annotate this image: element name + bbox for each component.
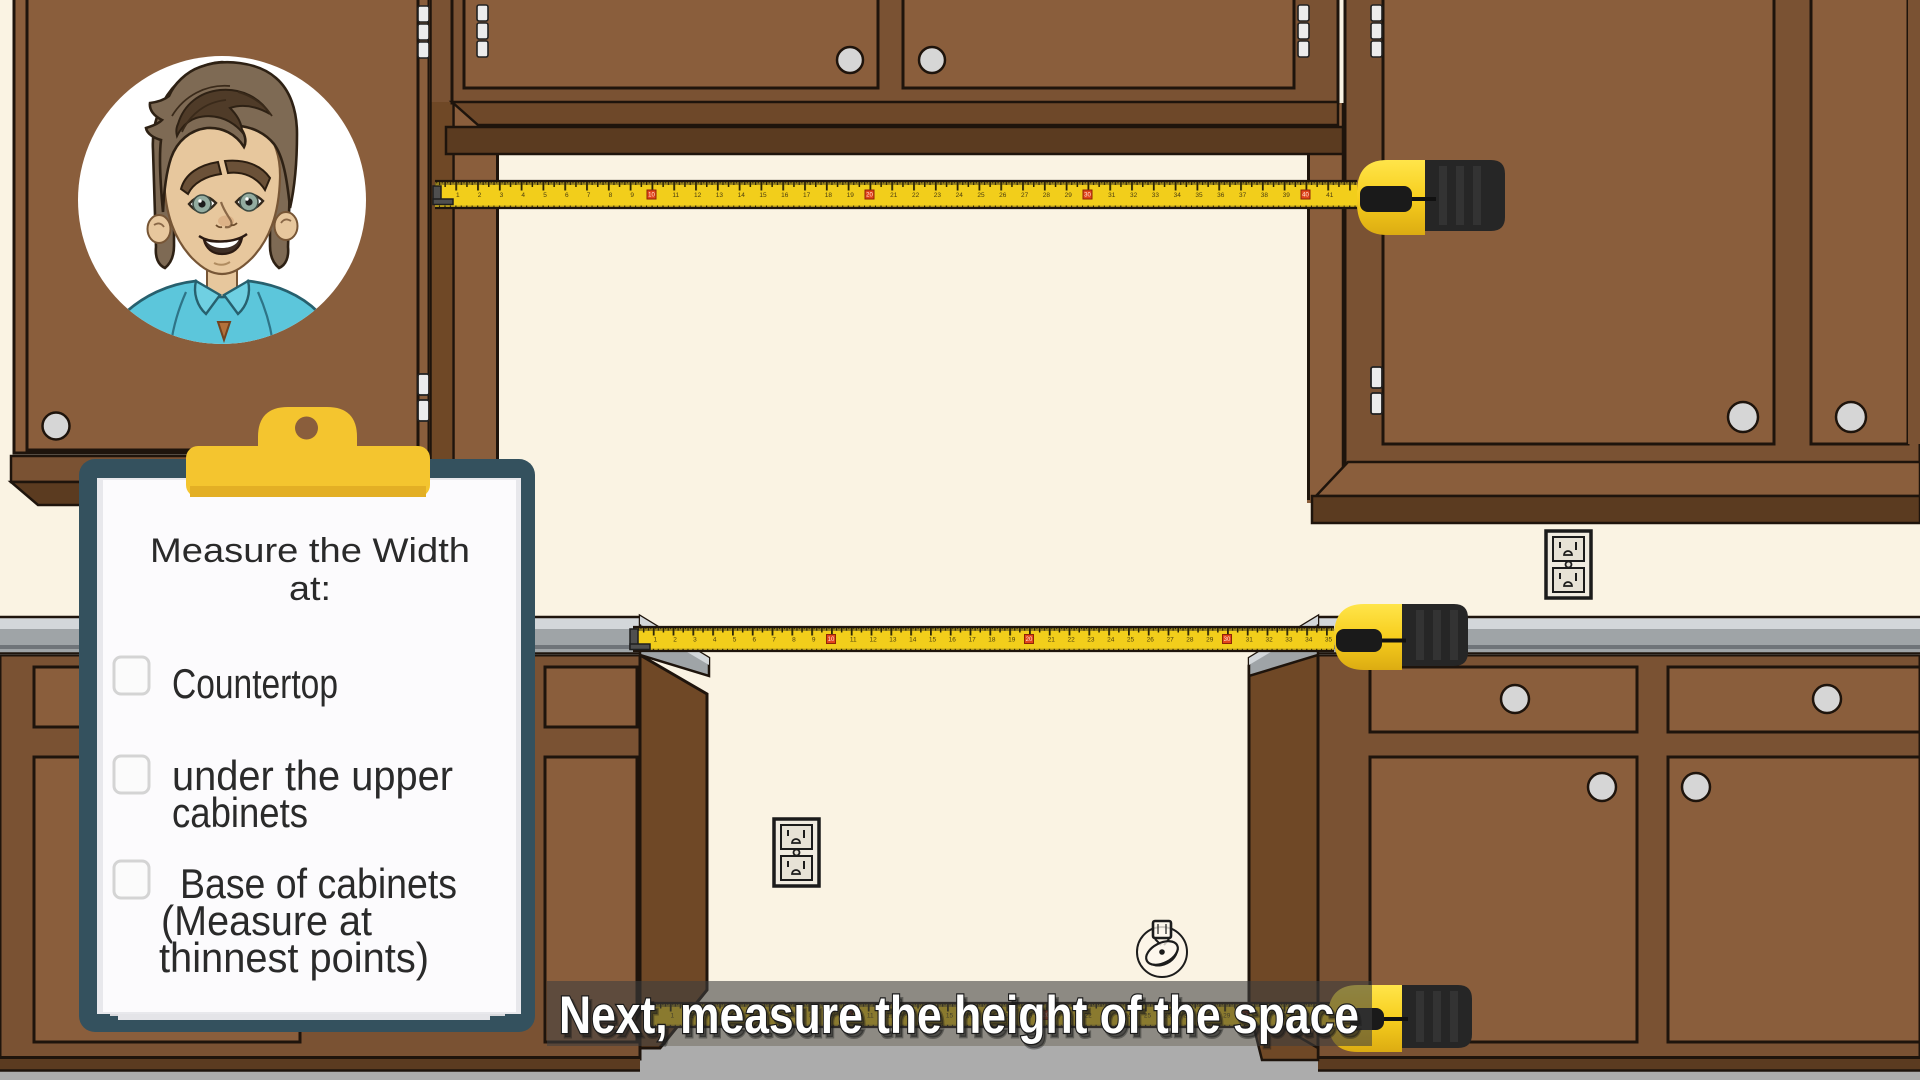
svg-text:thinnest points): thinnest points) <box>159 934 429 981</box>
svg-text:29: 29 <box>1065 192 1073 199</box>
svg-text:13: 13 <box>716 192 724 199</box>
svg-text:4: 4 <box>713 637 717 644</box>
svg-text:16: 16 <box>781 192 789 199</box>
svg-text:21: 21 <box>1048 637 1056 644</box>
svg-text:35: 35 <box>1195 192 1203 199</box>
svg-text:9: 9 <box>630 192 634 199</box>
svg-text:28: 28 <box>1186 637 1194 644</box>
svg-text:7: 7 <box>772 637 776 644</box>
svg-text:14: 14 <box>738 192 746 199</box>
svg-text:29: 29 <box>1206 637 1214 644</box>
svg-text:33: 33 <box>1152 192 1160 199</box>
svg-text:14: 14 <box>909 637 917 644</box>
svg-text:27: 27 <box>1166 637 1174 644</box>
svg-text:27: 27 <box>1021 192 1029 199</box>
svg-text:6: 6 <box>565 192 569 199</box>
svg-text:11: 11 <box>672 192 679 199</box>
svg-text:20: 20 <box>1026 637 1033 643</box>
svg-text:32: 32 <box>1130 192 1138 199</box>
svg-text:Countertop: Countertop <box>172 660 338 707</box>
svg-text:23: 23 <box>934 192 942 199</box>
svg-text:40: 40 <box>1302 193 1309 199</box>
svg-text:30: 30 <box>1084 193 1091 199</box>
svg-text:17: 17 <box>803 192 811 199</box>
svg-text:2: 2 <box>478 192 482 199</box>
svg-text:19: 19 <box>1008 637 1016 644</box>
svg-text:18: 18 <box>988 637 996 644</box>
svg-text:28: 28 <box>1043 192 1051 199</box>
svg-text:30: 30 <box>1224 637 1231 643</box>
svg-text:Measure the Width: Measure the Width <box>150 532 470 570</box>
svg-text:31: 31 <box>1246 637 1254 644</box>
svg-text:19: 19 <box>847 192 855 199</box>
svg-text:15: 15 <box>929 637 937 644</box>
svg-text:3: 3 <box>693 637 697 644</box>
svg-text:9: 9 <box>812 637 816 644</box>
svg-text:23: 23 <box>1087 637 1095 644</box>
svg-text:26: 26 <box>999 192 1007 199</box>
svg-text:39: 39 <box>1283 192 1291 199</box>
svg-text:13: 13 <box>889 637 897 644</box>
svg-text:34: 34 <box>1305 637 1313 644</box>
svg-text:6: 6 <box>752 637 756 644</box>
svg-text:12: 12 <box>869 637 877 644</box>
svg-text:24: 24 <box>956 192 964 199</box>
svg-text:22: 22 <box>912 192 920 199</box>
svg-text:1: 1 <box>653 637 657 644</box>
svg-text:37: 37 <box>1239 192 1247 199</box>
svg-text:8: 8 <box>792 637 796 644</box>
svg-text:at:: at: <box>289 570 331 608</box>
svg-text:24: 24 <box>1107 637 1115 644</box>
svg-text:10: 10 <box>648 193 655 199</box>
svg-text:26: 26 <box>1147 637 1155 644</box>
svg-text:41: 41 <box>1326 192 1334 199</box>
svg-text:22: 22 <box>1067 637 1075 644</box>
svg-text:17: 17 <box>968 637 976 644</box>
svg-text:7: 7 <box>587 192 591 199</box>
svg-text:1: 1 <box>456 192 460 199</box>
svg-text:Next, measure the height of th: Next, measure the height of the space <box>559 986 1359 1045</box>
svg-text:cabinets: cabinets <box>172 789 308 836</box>
svg-text:10: 10 <box>828 637 835 643</box>
svg-text:5: 5 <box>733 637 737 644</box>
svg-text:20: 20 <box>866 193 873 199</box>
svg-text:38: 38 <box>1261 192 1269 199</box>
svg-text:25: 25 <box>977 192 985 199</box>
svg-text:31: 31 <box>1108 192 1116 199</box>
svg-text:16: 16 <box>949 637 957 644</box>
svg-text:5: 5 <box>543 192 547 199</box>
svg-text:15: 15 <box>759 192 767 199</box>
svg-text:25: 25 <box>1127 637 1135 644</box>
svg-text:2: 2 <box>673 637 677 644</box>
svg-text:34: 34 <box>1174 192 1182 199</box>
svg-text:35: 35 <box>1325 637 1333 644</box>
svg-text:33: 33 <box>1285 637 1293 644</box>
svg-text:11: 11 <box>850 637 857 644</box>
svg-text:18: 18 <box>825 192 833 199</box>
svg-text:36: 36 <box>1217 192 1225 199</box>
svg-text:4: 4 <box>521 192 525 199</box>
svg-text:21: 21 <box>890 192 898 199</box>
svg-text:12: 12 <box>694 192 702 199</box>
svg-text:8: 8 <box>609 192 613 199</box>
svg-text:32: 32 <box>1265 637 1273 644</box>
svg-text:3: 3 <box>500 192 504 199</box>
